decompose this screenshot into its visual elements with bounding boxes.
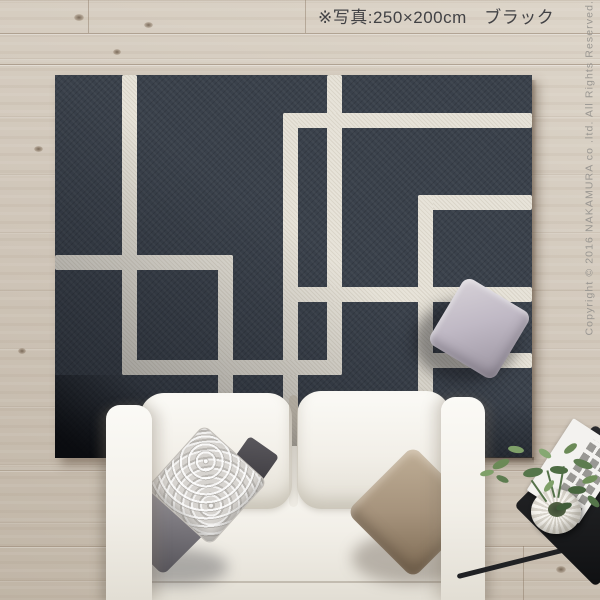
- plant-leaf: [562, 442, 578, 456]
- plant-leaf: [572, 456, 594, 472]
- plant-leaf: [568, 485, 587, 495]
- floor-plank-seam: [0, 33, 600, 34]
- product-photo: ※写真:250×200cm ブラック Copyright © 2016 NAKA…: [0, 0, 600, 600]
- plant-leaf: [523, 467, 544, 478]
- wood-knot: [556, 566, 566, 573]
- copyright-text: Copyright © 2016 NAKAMURA co .ltd. All R…: [584, 6, 597, 336]
- plant-leaf: [556, 502, 573, 512]
- wood-knot: [113, 49, 121, 55]
- floor-plank-seam: [0, 64, 600, 65]
- plant-leaf: [581, 474, 598, 485]
- sofa-arm-left: [106, 405, 152, 600]
- plant-foliage: [468, 428, 600, 553]
- plant-leaf: [549, 464, 568, 475]
- wood-knot: [144, 22, 153, 28]
- sofa-cushion-gap: [289, 395, 298, 507]
- plant-leaf: [537, 446, 552, 460]
- wood-knot: [18, 348, 26, 354]
- plant-leaf: [495, 473, 509, 485]
- plant-leaf: [480, 469, 495, 477]
- wood-knot: [34, 146, 43, 152]
- wood-knot: [74, 14, 84, 21]
- floor-plank-joint: [305, 0, 306, 33]
- plant-leaf: [491, 457, 511, 471]
- plant-leaf: [586, 494, 600, 510]
- plant-leaf: [507, 444, 524, 455]
- photo-caption: ※写真:250×200cm ブラック: [318, 3, 554, 28]
- rug-edge-shadow: [532, 80, 537, 460]
- floor-plank-joint: [523, 546, 524, 600]
- floor-plank-joint: [88, 0, 89, 33]
